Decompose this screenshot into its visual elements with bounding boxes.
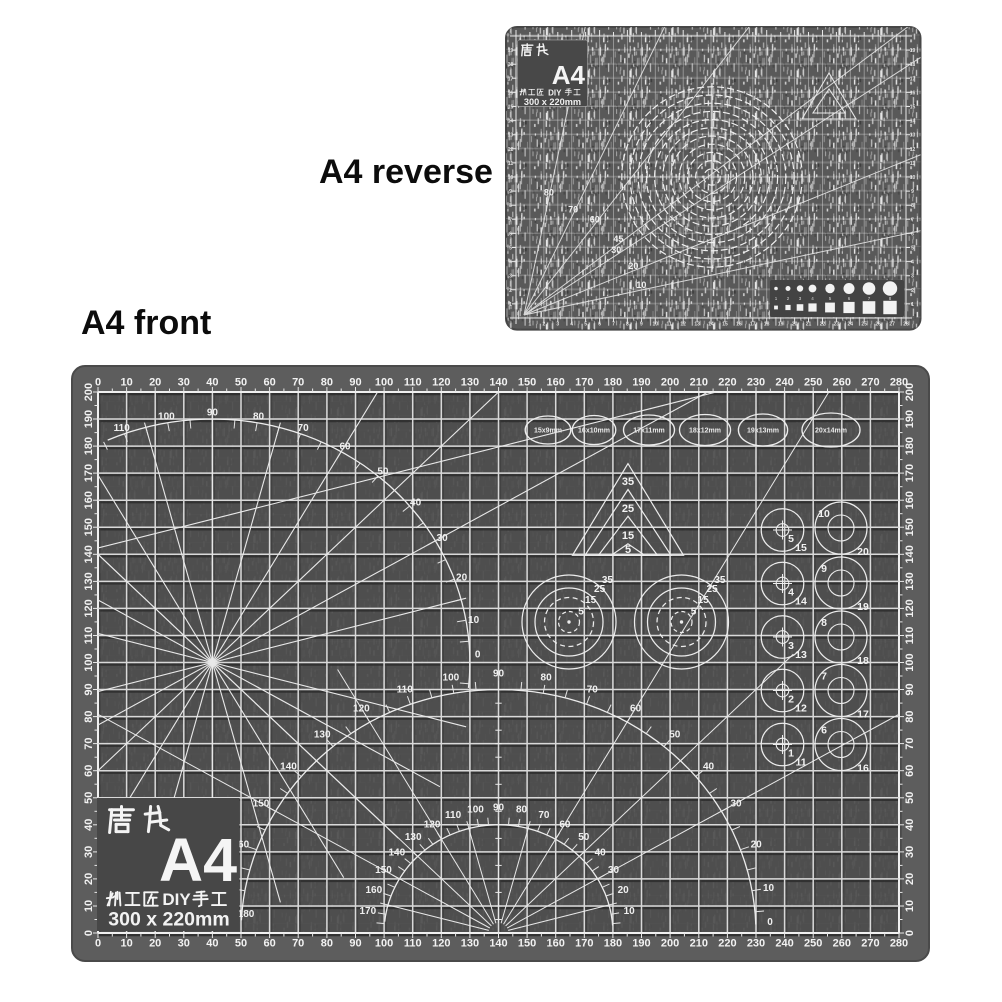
svg-text:5: 5 [578,606,584,617]
svg-text:140: 140 [388,847,405,858]
svg-text:170: 170 [575,938,593,950]
svg-text:4: 4 [509,260,512,266]
svg-text:130: 130 [461,377,479,389]
svg-text:230: 230 [747,377,765,389]
svg-text:150: 150 [518,377,536,389]
svg-text:210: 210 [690,938,708,950]
svg-text:9: 9 [509,189,512,195]
svg-text:1: 1 [529,322,532,328]
svg-text:100: 100 [158,412,175,423]
svg-text:30: 30 [178,377,190,389]
svg-text:70: 70 [292,377,304,389]
svg-text:110: 110 [404,938,422,950]
svg-text:50: 50 [235,938,247,950]
svg-text:10: 10 [120,938,132,950]
svg-text:20: 20 [618,885,630,896]
svg-text:110: 110 [397,684,414,695]
svg-text:50: 50 [83,792,95,804]
svg-text:5: 5 [691,606,697,617]
svg-text:18: 18 [857,655,869,667]
svg-text:0: 0 [95,377,101,389]
svg-text:80: 80 [253,412,265,423]
svg-text:170: 170 [904,464,916,482]
svg-text:7: 7 [911,217,914,223]
svg-text:50: 50 [578,832,590,843]
svg-text:17: 17 [750,322,756,328]
svg-text:100: 100 [375,938,393,950]
svg-text:2: 2 [788,694,794,706]
svg-text:190: 190 [904,410,916,428]
svg-text:20: 20 [149,938,161,950]
svg-text:10: 10 [904,900,916,912]
svg-text:12: 12 [795,703,807,715]
svg-text:80: 80 [541,673,553,684]
svg-text:150: 150 [904,518,916,536]
svg-text:130: 130 [83,572,95,590]
svg-text:140: 140 [489,938,507,950]
svg-text:19: 19 [857,601,869,613]
svg-text:18x12mm: 18x12mm [689,428,721,435]
svg-text:11: 11 [667,322,673,328]
svg-text:21: 21 [806,322,812,328]
svg-text:9: 9 [911,189,914,195]
svg-text:10: 10 [83,900,95,912]
svg-text:220: 220 [718,377,736,389]
svg-text:200: 200 [661,377,679,389]
svg-text:16: 16 [857,763,869,775]
svg-text:100: 100 [375,377,393,389]
svg-text:270: 270 [861,377,879,389]
svg-text:19: 19 [778,322,784,328]
svg-text:100: 100 [83,653,95,671]
svg-text:35: 35 [622,476,634,488]
svg-text:170: 170 [575,377,593,389]
svg-text:3: 3 [556,322,559,328]
svg-text:15x9mm: 15x9mm [534,428,562,435]
svg-text:20: 20 [792,322,798,328]
svg-text:3: 3 [788,640,794,652]
svg-text:20: 20 [751,839,763,850]
svg-text:160: 160 [904,491,916,509]
svg-text:0: 0 [83,930,95,936]
svg-text:2: 2 [911,288,914,294]
svg-text:260: 260 [833,377,851,389]
svg-text:16: 16 [736,322,742,328]
svg-text:17: 17 [910,76,916,82]
svg-text:A4: A4 [159,826,237,894]
svg-text:12: 12 [910,147,916,153]
svg-text:30: 30 [730,798,742,809]
svg-text:60: 60 [630,704,642,715]
svg-text:20: 20 [904,873,916,885]
svg-text:DIY: DIY [162,890,191,909]
svg-text:110: 110 [904,627,916,645]
svg-text:40: 40 [595,847,607,858]
svg-text:0: 0 [767,917,773,928]
svg-text:90: 90 [349,938,361,950]
svg-text:17: 17 [857,709,869,721]
svg-text:30: 30 [83,846,95,858]
svg-text:18: 18 [764,322,770,328]
svg-text:5: 5 [625,544,631,556]
svg-text:60: 60 [590,214,600,224]
svg-text:20: 20 [83,873,95,885]
svg-text:6: 6 [509,231,512,237]
svg-text:1: 1 [788,748,794,760]
svg-text:160: 160 [83,491,95,509]
svg-text:80: 80 [516,804,528,815]
svg-text:140: 140 [489,377,507,389]
svg-text:180: 180 [604,938,622,950]
svg-text:90: 90 [904,683,916,695]
svg-text:140: 140 [83,545,95,563]
svg-text:80: 80 [904,710,916,722]
svg-text:40: 40 [206,938,218,950]
svg-text:200: 200 [904,383,916,401]
svg-text:17x11mm: 17x11mm [633,428,665,435]
svg-text:4: 4 [788,587,794,599]
svg-text:14: 14 [910,119,916,125]
svg-text:300 x 220mm: 300 x 220mm [108,909,229,931]
svg-text:70: 70 [587,684,599,695]
svg-text:180: 180 [238,909,255,920]
svg-text:270: 270 [861,938,879,950]
svg-text:26: 26 [875,322,881,328]
svg-text:10: 10 [763,883,775,894]
svg-text:2: 2 [543,322,546,328]
svg-text:190: 190 [632,377,650,389]
svg-text:40: 40 [703,761,715,772]
svg-text:19: 19 [910,48,916,54]
svg-text:30: 30 [178,938,190,950]
svg-text:20: 20 [149,377,161,389]
svg-text:60: 60 [559,819,571,830]
svg-text:220: 220 [718,938,736,950]
svg-text:80: 80 [544,188,554,198]
svg-text:0: 0 [475,650,481,661]
svg-text:0: 0 [95,938,101,950]
svg-text:70: 70 [904,737,916,749]
svg-text:100: 100 [443,673,460,684]
svg-text:30: 30 [608,865,620,876]
svg-text:90: 90 [349,377,361,389]
svg-text:28: 28 [903,322,909,328]
svg-text:20: 20 [456,573,468,584]
svg-text:180: 180 [83,437,95,455]
svg-text:11: 11 [508,161,514,167]
svg-text:30: 30 [904,846,916,858]
svg-text:10: 10 [120,377,132,389]
svg-text:110: 110 [445,810,462,821]
svg-text:110: 110 [114,423,131,434]
svg-text:110: 110 [83,627,95,645]
svg-text:130: 130 [405,832,422,843]
svg-text:6: 6 [821,725,827,737]
svg-text:60: 60 [263,377,275,389]
svg-text:8: 8 [626,322,629,328]
svg-text:80: 80 [321,377,333,389]
svg-text:4: 4 [570,322,573,328]
svg-text:16: 16 [910,90,916,96]
svg-text:160: 160 [547,938,565,950]
svg-text:15: 15 [585,595,597,606]
svg-text:15: 15 [622,530,634,542]
svg-text:130: 130 [461,938,479,950]
svg-text:90: 90 [493,803,505,814]
svg-text:3: 3 [509,274,512,280]
svg-text:11: 11 [795,757,806,769]
svg-text:120: 120 [432,377,450,389]
svg-text:27: 27 [889,322,895,328]
svg-text:8: 8 [821,617,827,629]
svg-text:230: 230 [747,938,765,950]
svg-text:10: 10 [468,615,480,626]
svg-text:70: 70 [538,810,550,821]
svg-text:A4 reverse: A4 reverse [319,153,493,191]
svg-text:13: 13 [694,322,700,328]
svg-text:20x14mm: 20x14mm [815,428,847,435]
svg-text:7: 7 [821,671,827,683]
svg-text:130: 130 [904,572,916,590]
svg-text:13: 13 [508,133,514,139]
svg-text:A4: A4 [552,60,586,90]
svg-text:1: 1 [509,302,512,308]
svg-text:260: 260 [833,938,851,950]
svg-text:120: 120 [432,938,450,950]
svg-text:120: 120 [904,599,916,617]
svg-text:50: 50 [235,377,247,389]
svg-text:250: 250 [804,938,822,950]
svg-text:9: 9 [640,322,643,328]
svg-text:10: 10 [508,175,514,181]
svg-text:9: 9 [821,563,827,575]
svg-text:190: 190 [83,410,95,428]
svg-text:6: 6 [598,322,601,328]
svg-text:25: 25 [861,322,867,328]
svg-text:150: 150 [518,938,536,950]
svg-text:140: 140 [904,545,916,563]
svg-text:3: 3 [911,274,914,280]
svg-text:18: 18 [508,62,514,68]
svg-text:70: 70 [568,204,578,214]
svg-text:0: 0 [904,930,916,936]
svg-text:200: 200 [661,938,679,950]
svg-text:15: 15 [795,542,807,554]
svg-text:10: 10 [653,322,659,328]
svg-text:240: 240 [775,377,793,389]
svg-text:13: 13 [910,133,916,139]
svg-text:24: 24 [848,322,854,328]
svg-text:15: 15 [910,105,916,111]
svg-text:8: 8 [911,203,914,209]
svg-text:60: 60 [263,938,275,950]
svg-text:210: 210 [690,377,708,389]
svg-text:20: 20 [628,261,638,271]
svg-text:17: 17 [508,76,514,82]
svg-text:5: 5 [584,322,587,328]
svg-text:70: 70 [298,423,310,434]
svg-text:16x10mm: 16x10mm [578,428,610,435]
svg-text:5: 5 [911,246,914,252]
svg-text:130: 130 [314,729,331,740]
svg-text:110: 110 [404,377,422,389]
svg-text:60: 60 [904,765,916,777]
svg-text:40: 40 [410,497,422,508]
svg-text:50: 50 [904,792,916,804]
svg-text:250: 250 [804,377,822,389]
svg-text:20: 20 [857,546,869,558]
svg-text:15: 15 [698,595,710,606]
svg-text:14: 14 [795,596,807,608]
svg-text:25: 25 [622,503,634,515]
svg-text:40: 40 [904,819,916,831]
svg-text:190: 190 [632,938,650,950]
svg-text:10: 10 [818,508,830,520]
svg-text:8: 8 [509,203,512,209]
svg-text:30: 30 [611,245,621,255]
svg-text:120: 120 [83,599,95,617]
svg-text:35: 35 [714,575,726,586]
svg-text:70: 70 [292,938,304,950]
svg-text:280: 280 [890,938,908,950]
svg-text:180: 180 [604,377,622,389]
svg-text:100: 100 [467,804,484,815]
svg-text:19: 19 [508,48,514,54]
svg-text:5: 5 [509,246,512,252]
svg-text:7: 7 [612,322,615,328]
svg-text:4: 4 [911,260,914,266]
svg-text:80: 80 [83,710,95,722]
svg-text:150: 150 [83,518,95,536]
svg-text:170: 170 [83,464,95,482]
svg-text:40: 40 [83,819,95,831]
svg-text:140: 140 [280,761,297,772]
svg-text:5: 5 [788,533,794,545]
svg-text:50: 50 [669,729,681,740]
svg-text:10: 10 [624,906,636,917]
svg-text:16: 16 [508,90,514,96]
svg-text:10: 10 [636,280,646,290]
svg-text:200: 200 [83,383,95,401]
svg-text:12: 12 [508,147,514,153]
svg-text:7: 7 [509,217,512,223]
svg-text:170: 170 [359,906,376,917]
svg-text:90: 90 [83,683,95,695]
svg-text:A4 front: A4 front [81,304,211,342]
svg-text:100: 100 [904,653,916,671]
svg-text:80: 80 [321,938,333,950]
svg-text:2: 2 [509,288,512,294]
svg-text:11: 11 [910,161,916,167]
svg-text:240: 240 [775,938,793,950]
svg-text:160: 160 [365,885,382,896]
svg-text:180: 180 [904,437,916,455]
svg-text:22: 22 [820,322,826,328]
svg-text:90: 90 [493,669,505,680]
svg-text:40: 40 [206,377,218,389]
svg-text:14: 14 [708,322,714,328]
svg-text:12: 12 [680,322,686,328]
svg-text:300 x 220mm: 300 x 220mm [524,97,581,107]
svg-text:160: 160 [547,377,565,389]
svg-text:15: 15 [508,105,514,111]
svg-text:14: 14 [508,119,514,125]
svg-text:10: 10 [910,175,916,181]
svg-text:70: 70 [83,737,95,749]
svg-text:13: 13 [795,649,807,661]
svg-text:19x13mm: 19x13mm [747,428,779,435]
svg-text:60: 60 [83,765,95,777]
svg-text:45: 45 [613,234,623,244]
svg-text:23: 23 [834,322,840,328]
svg-text:15: 15 [722,322,728,328]
svg-text:1: 1 [911,302,914,308]
svg-text:35: 35 [602,575,614,586]
